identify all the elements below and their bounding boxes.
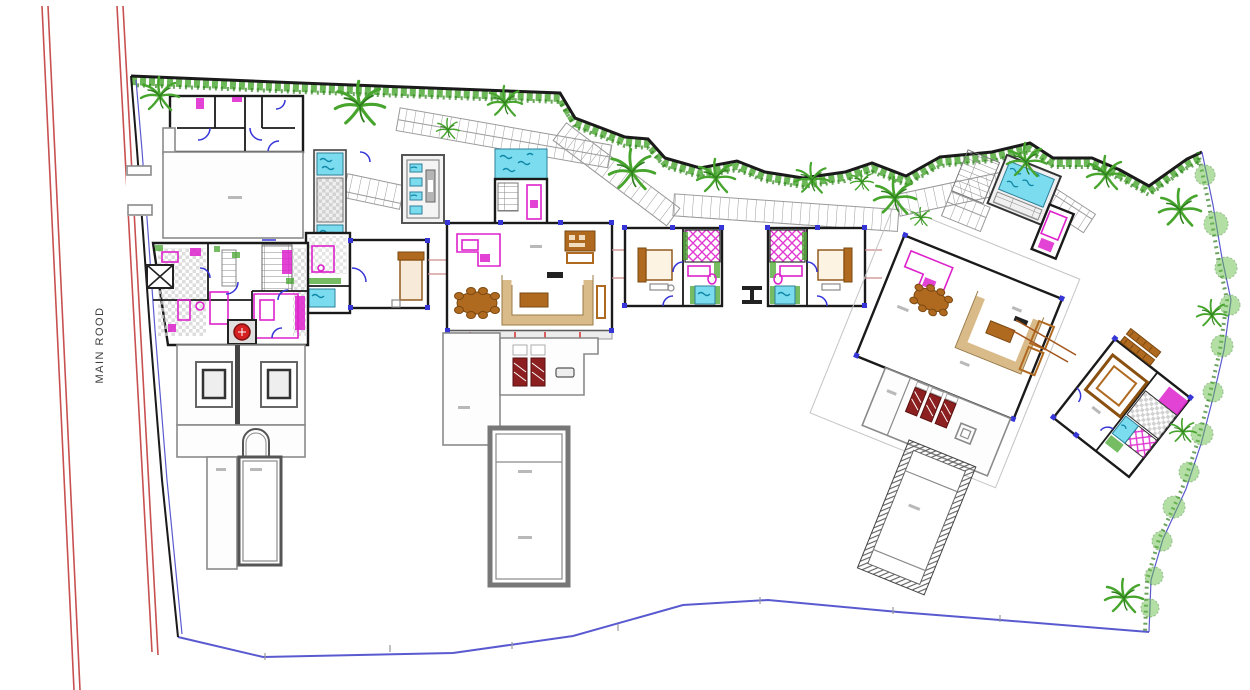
water-feature-column bbox=[314, 150, 346, 246]
gate-post-north bbox=[127, 166, 151, 175]
spa-pavilion bbox=[495, 149, 547, 227]
bed bbox=[818, 250, 844, 280]
bed-headboard bbox=[398, 252, 424, 260]
bed-headboard bbox=[844, 248, 852, 282]
between-villas-structure bbox=[742, 286, 762, 304]
illegible-room-label bbox=[228, 196, 242, 199]
site-plan-canvas: MAIN ROOD bbox=[0, 0, 1250, 690]
east-pool bbox=[857, 440, 975, 595]
middle-terrace bbox=[443, 333, 598, 585]
bathroom-tiles bbox=[685, 230, 720, 262]
bed bbox=[646, 250, 672, 280]
west-terrace bbox=[177, 345, 305, 569]
fixture bbox=[196, 98, 204, 109]
guest-villa-right bbox=[765, 225, 882, 308]
planter-right bbox=[261, 362, 297, 407]
middle-pool bbox=[490, 428, 568, 585]
east-bedroom-villa bbox=[1050, 323, 1203, 480]
red-feature bbox=[228, 320, 256, 344]
pond-deck bbox=[402, 155, 444, 223]
walkway-strip bbox=[207, 457, 237, 569]
main-road: MAIN ROOD bbox=[42, 6, 158, 690]
west-bedroom-villa bbox=[306, 233, 447, 313]
x-box bbox=[147, 265, 173, 288]
illegible-room-label bbox=[530, 245, 542, 248]
west-service-complex bbox=[147, 240, 308, 345]
south-boundary-line bbox=[178, 600, 1149, 657]
bed-headboard bbox=[638, 248, 646, 282]
survey-ticks bbox=[265, 597, 1000, 660]
coffee-table bbox=[520, 293, 548, 307]
bathroom-tiles bbox=[770, 230, 805, 262]
living-pavilion bbox=[445, 220, 625, 339]
garage-hall bbox=[163, 152, 303, 238]
gate-post-south bbox=[128, 205, 152, 215]
bed bbox=[400, 260, 422, 300]
tv-cabinet bbox=[565, 231, 595, 251]
road-label: MAIN ROOD bbox=[94, 306, 106, 383]
guest-villa-left bbox=[622, 225, 724, 308]
west-pool bbox=[239, 457, 281, 565]
site-plan-drawing: MAIN ROOD bbox=[0, 0, 1250, 690]
planter-left bbox=[196, 362, 232, 407]
